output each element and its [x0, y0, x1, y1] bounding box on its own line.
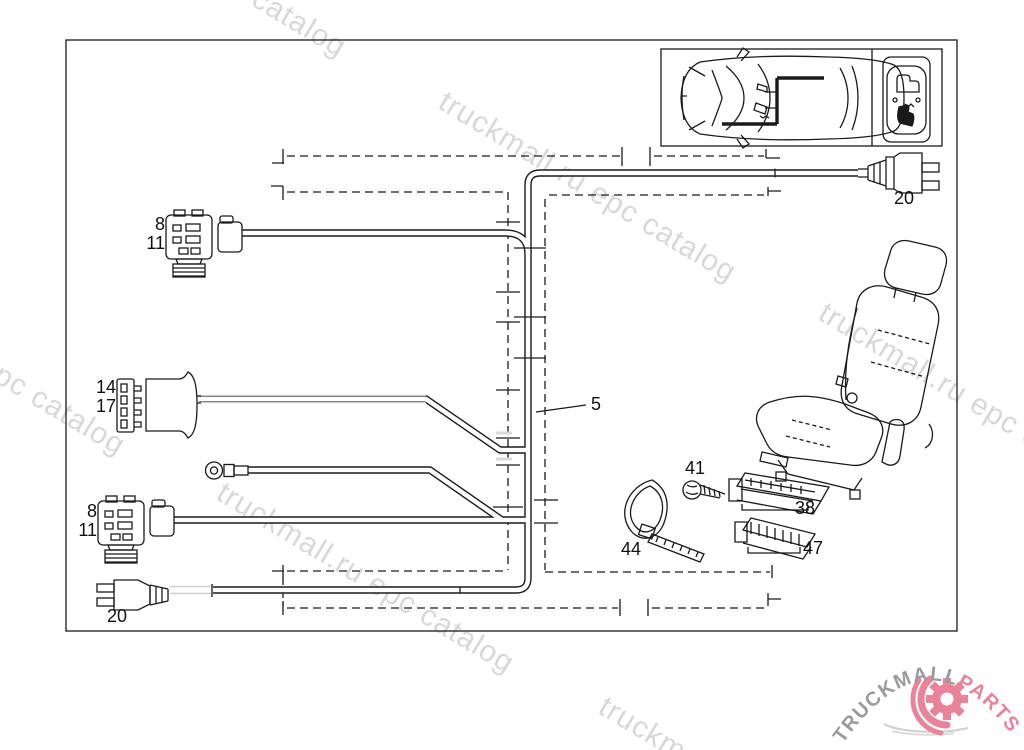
- connector-14-17-icon: [117, 372, 201, 438]
- connector-8-11-top-icon: [166, 210, 242, 277]
- harness-diagram: [0, 0, 1024, 750]
- callout-20-bottom[interactable]: 20: [107, 607, 127, 626]
- diagram-frame: [66, 40, 957, 631]
- callout-14-17[interactable]: 14 17: [92, 378, 116, 416]
- connector-8-11-lower-icon: [98, 496, 174, 563]
- leader-line-5: [536, 405, 586, 412]
- ring-terminal-icon: [206, 462, 249, 479]
- callout-5[interactable]: 5: [591, 395, 601, 414]
- epc-diagram-page: { "watermark": { "text": "truckmall.ru e…: [0, 0, 1024, 750]
- callout-8-11-top[interactable]: 8 11: [143, 215, 165, 253]
- seat-switch-icon: [883, 57, 930, 142]
- callout-41[interactable]: 41: [685, 459, 705, 478]
- callout-38[interactable]: 38: [795, 499, 815, 518]
- car-top-view-icon: [681, 48, 904, 148]
- screw-icon: [683, 481, 725, 499]
- callout-44[interactable]: 44: [621, 540, 641, 559]
- callout-20-top[interactable]: 20: [894, 189, 914, 208]
- callout-47[interactable]: 47: [803, 539, 823, 558]
- plug-20-top-icon: [858, 153, 939, 193]
- callout-8-11-lower[interactable]: 8 11: [75, 502, 97, 540]
- seat-illustration: [757, 241, 947, 500]
- car-locator-box: [661, 48, 942, 148]
